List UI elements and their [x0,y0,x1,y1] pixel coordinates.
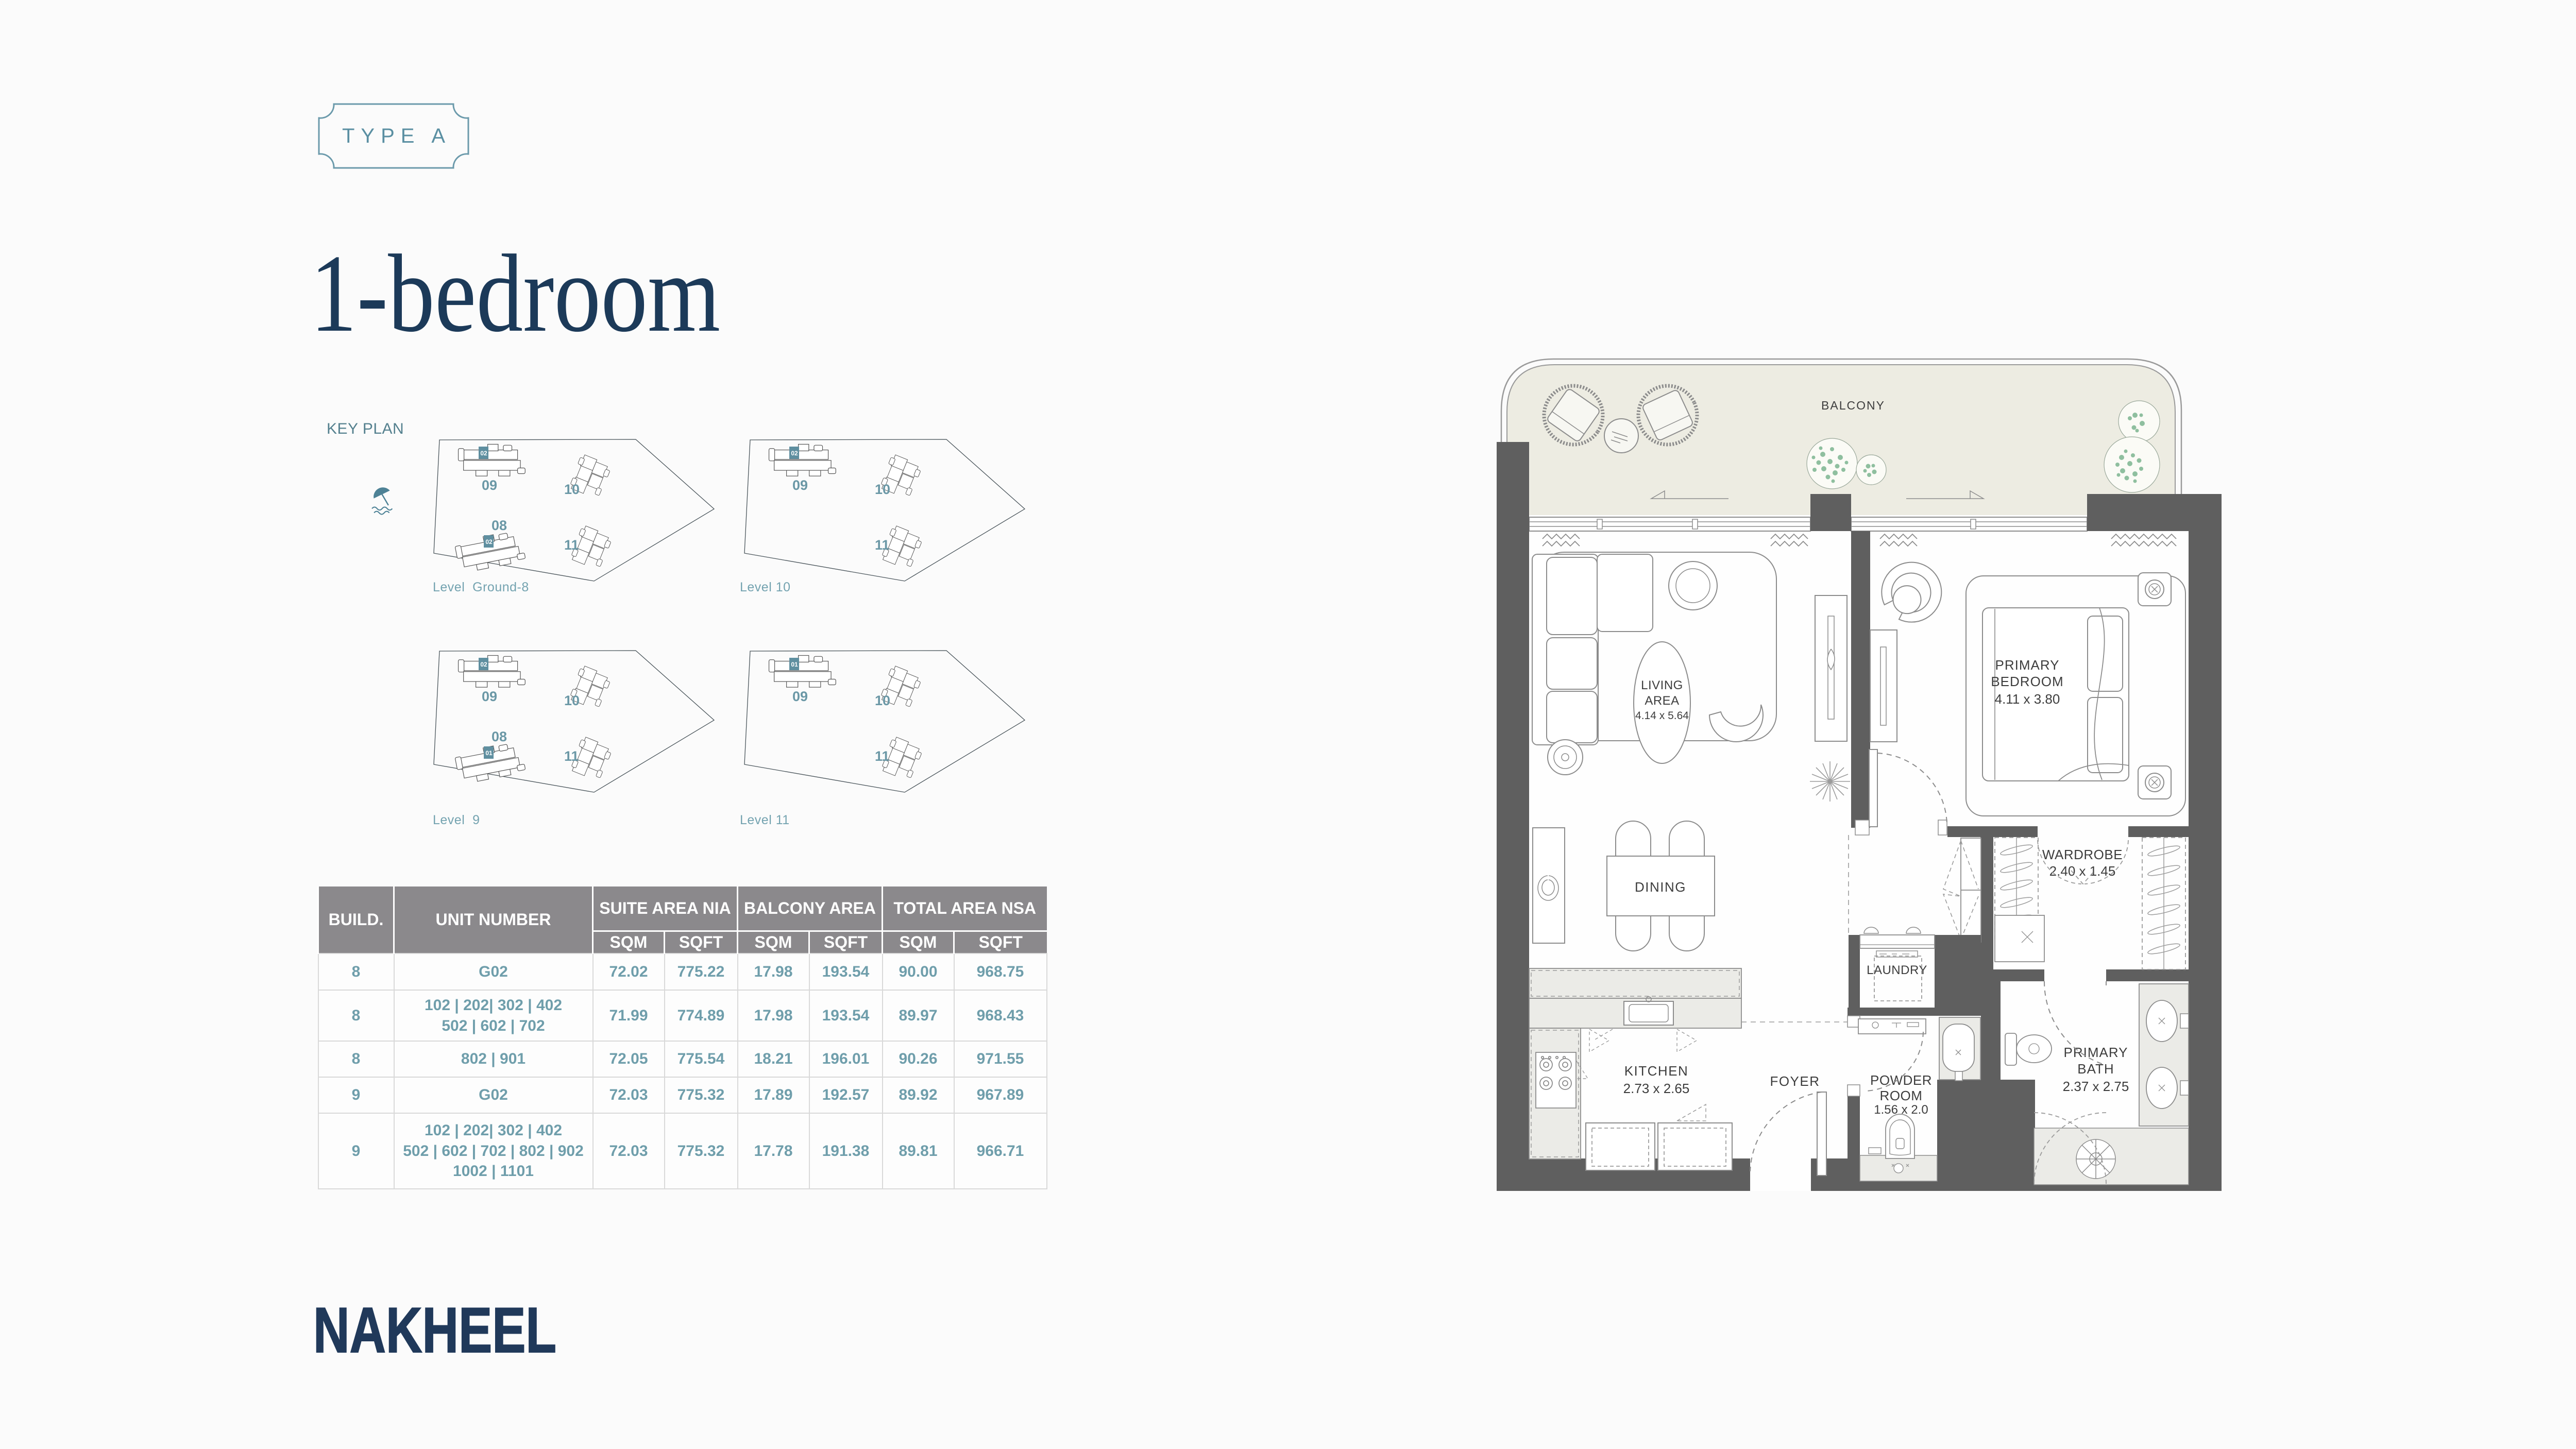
svg-text:POWDER: POWDER [1870,1072,1932,1088]
svg-text:10: 10 [875,482,890,497]
svg-text:09: 09 [792,689,808,704]
svg-text:08: 08 [492,729,507,744]
svg-text:LAUNDRY: LAUNDRY [1867,963,1927,977]
svg-text:PRIMARY: PRIMARY [1995,657,2060,673]
svg-text:10: 10 [564,693,580,708]
svg-text:BALCONY: BALCONY [1821,399,1885,412]
svg-text:ROOM: ROOM [1880,1088,1923,1103]
svg-text:09: 09 [482,478,497,493]
svg-text:NAKHEEL: NAKHEEL [313,1304,556,1356]
svg-text:09: 09 [482,689,497,704]
svg-text:09: 09 [792,478,808,493]
svg-text:10: 10 [875,693,890,708]
svg-text:KITCHEN: KITCHEN [1624,1063,1689,1079]
svg-text:BEDROOM: BEDROOM [1991,674,2063,689]
svg-text:11: 11 [875,748,890,764]
svg-text:4.14 x 5.64: 4.14 x 5.64 [1635,710,1689,722]
svg-text:PRIMARY: PRIMARY [2064,1045,2128,1060]
svg-text:11: 11 [564,537,579,553]
svg-text:11: 11 [875,537,890,553]
svg-text:08: 08 [492,518,507,533]
svg-text:LIVING: LIVING [1641,678,1683,692]
svg-text:2.73 x 2.65: 2.73 x 2.65 [1623,1081,1690,1096]
svg-text:WARDROBE: WARDROBE [2042,847,2123,862]
svg-text:4.11 x 3.80: 4.11 x 3.80 [1995,691,2060,707]
svg-text:AREA: AREA [1645,694,1679,708]
svg-text:FOYER: FOYER [1770,1073,1820,1089]
svg-text:11: 11 [564,748,579,764]
svg-text:2.37 x 2.75: 2.37 x 2.75 [2063,1079,2129,1094]
svg-text:BATH: BATH [2077,1061,2114,1077]
svg-text:DINING: DINING [1635,879,1686,895]
svg-text:2.40 x 1.45: 2.40 x 1.45 [2049,863,2116,879]
svg-text:10: 10 [564,482,580,497]
